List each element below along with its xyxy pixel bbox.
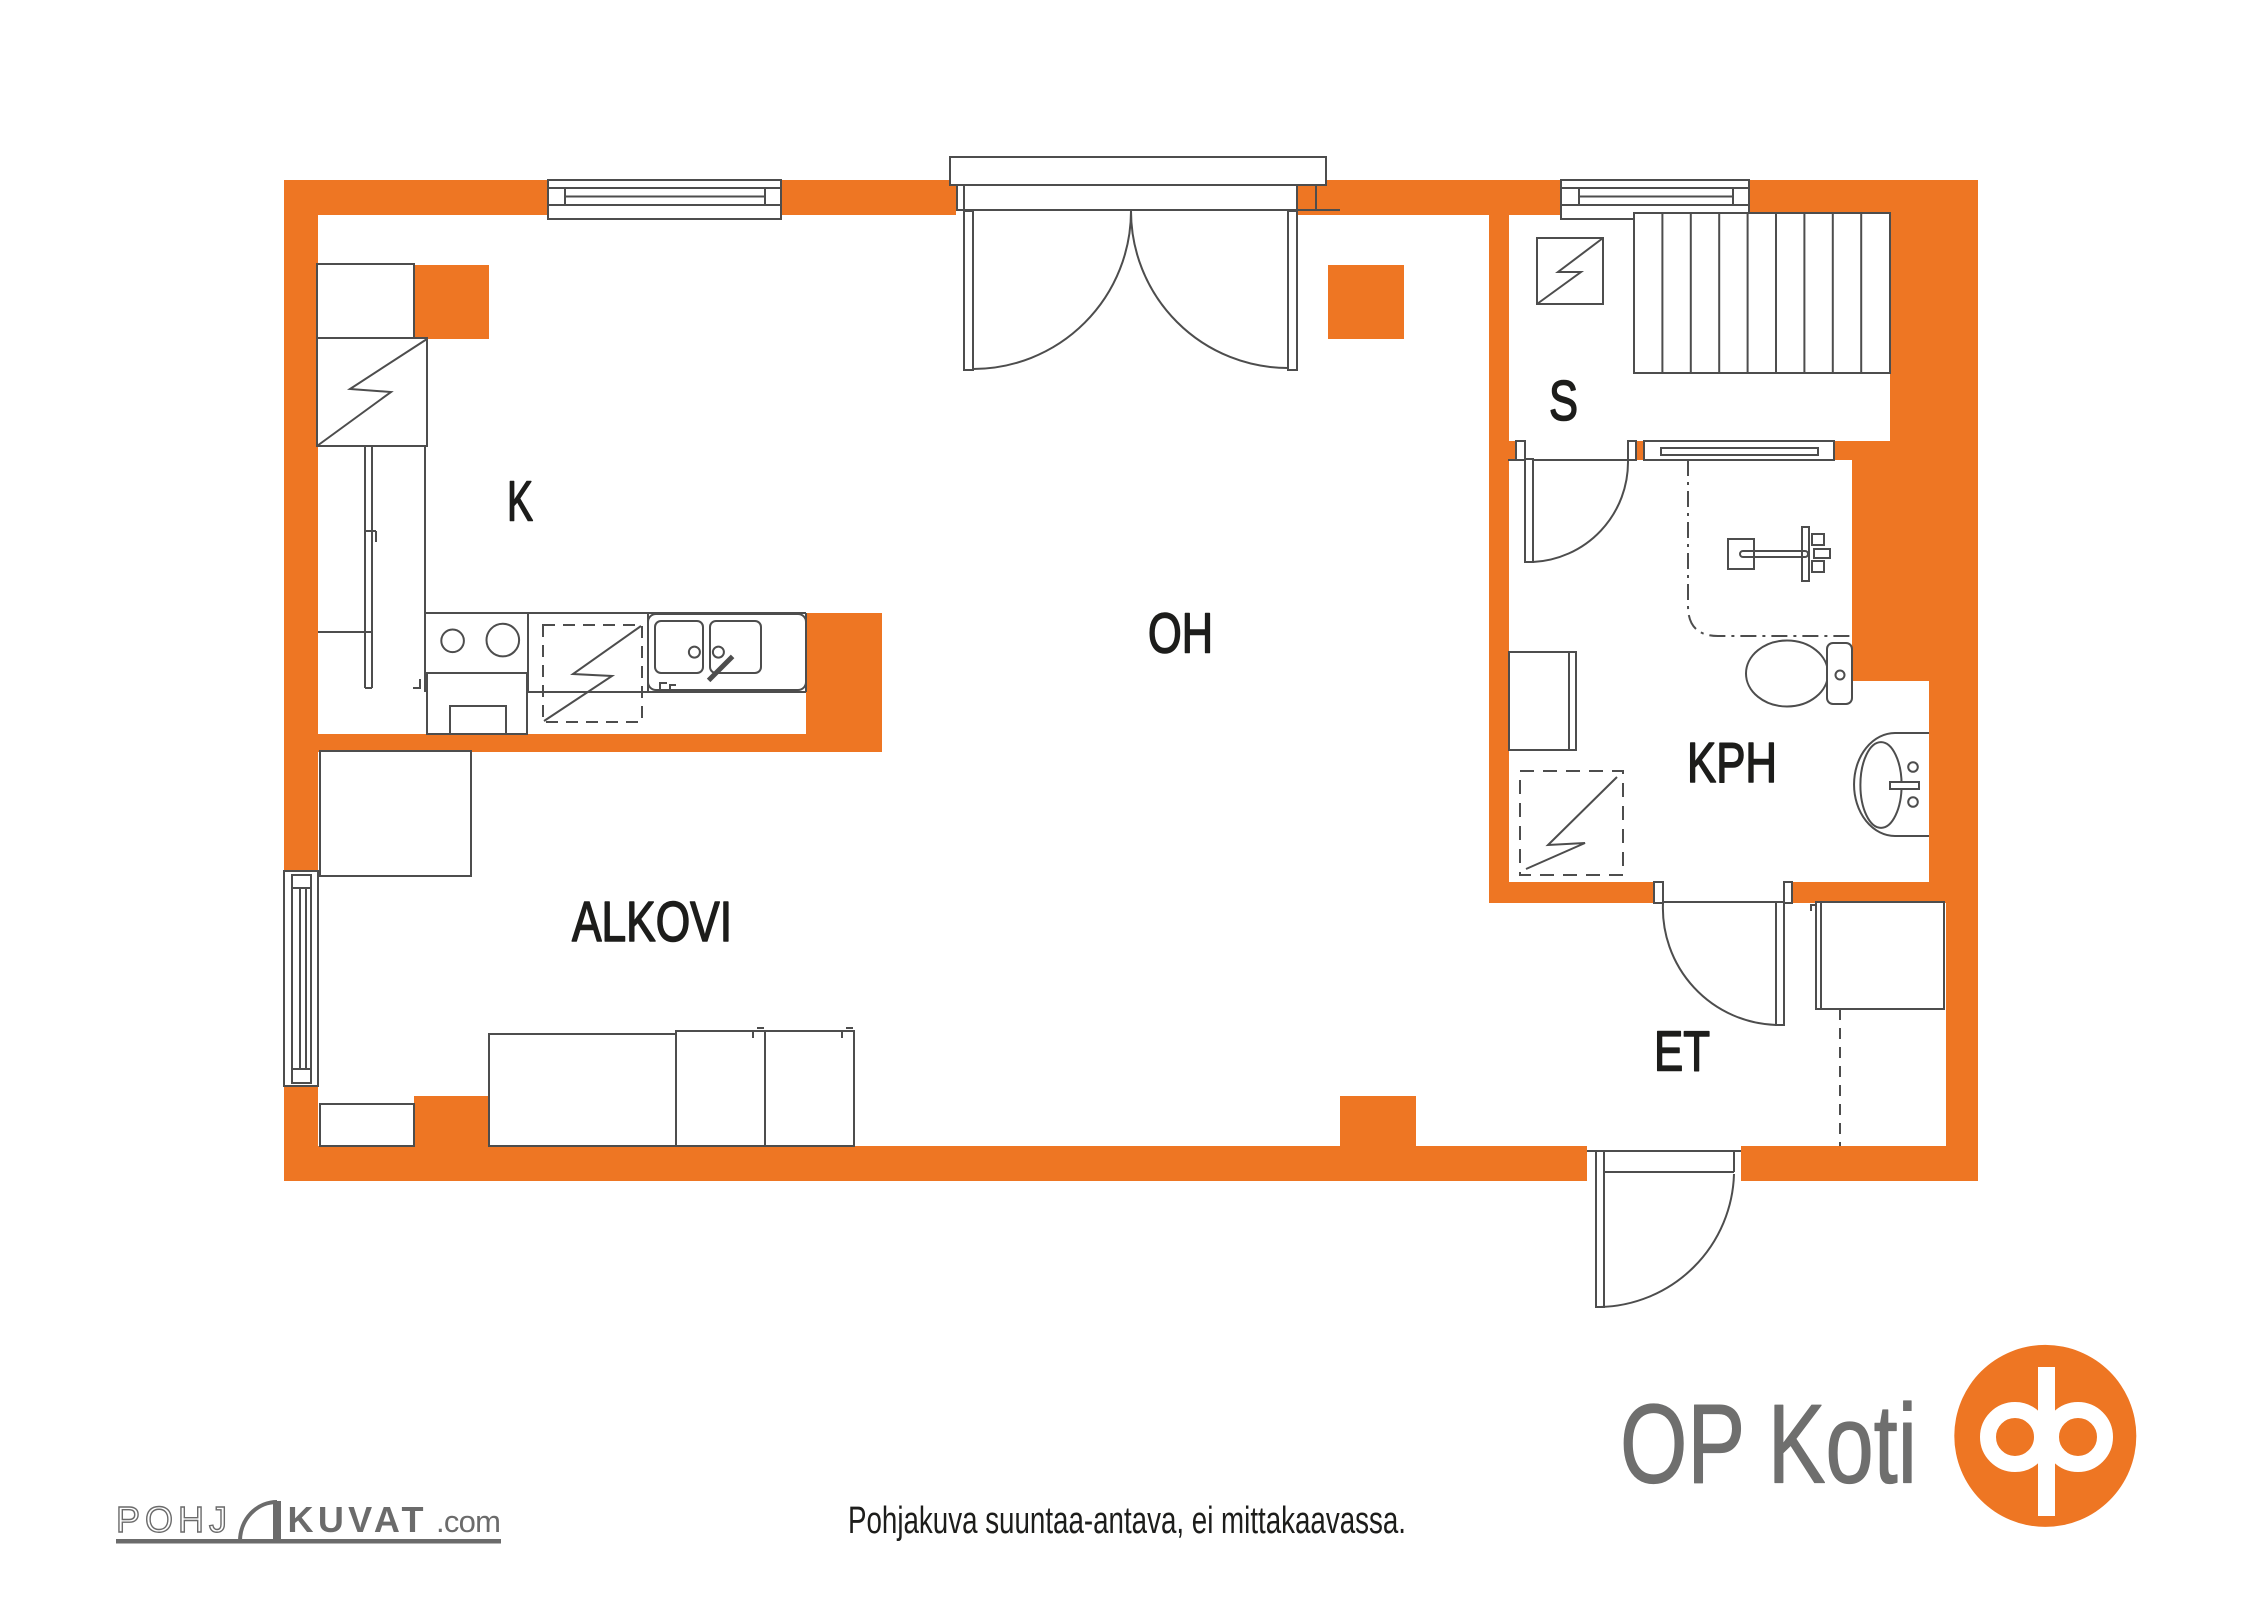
svg-text:KUVAT: KUVAT [288, 1499, 428, 1540]
svg-text:ET: ET [1654, 1020, 1710, 1084]
svg-text:S: S [1549, 369, 1578, 433]
svg-text:ALKOVI: ALKOVI [572, 890, 732, 954]
svg-text:KPH: KPH [1687, 731, 1777, 795]
svg-text:K: K [507, 470, 533, 534]
svg-text:Pohjakuva suuntaa-antava, ei m: Pohjakuva suuntaa-antava, ei mittakaavas… [848, 1500, 1406, 1542]
svg-text:.com: .com [436, 1504, 501, 1539]
svg-text:OH: OH [1148, 602, 1213, 666]
svg-text:OP Koti: OP Koti [1620, 1382, 1917, 1507]
svg-text:POHJ: POHJ [116, 1499, 233, 1540]
